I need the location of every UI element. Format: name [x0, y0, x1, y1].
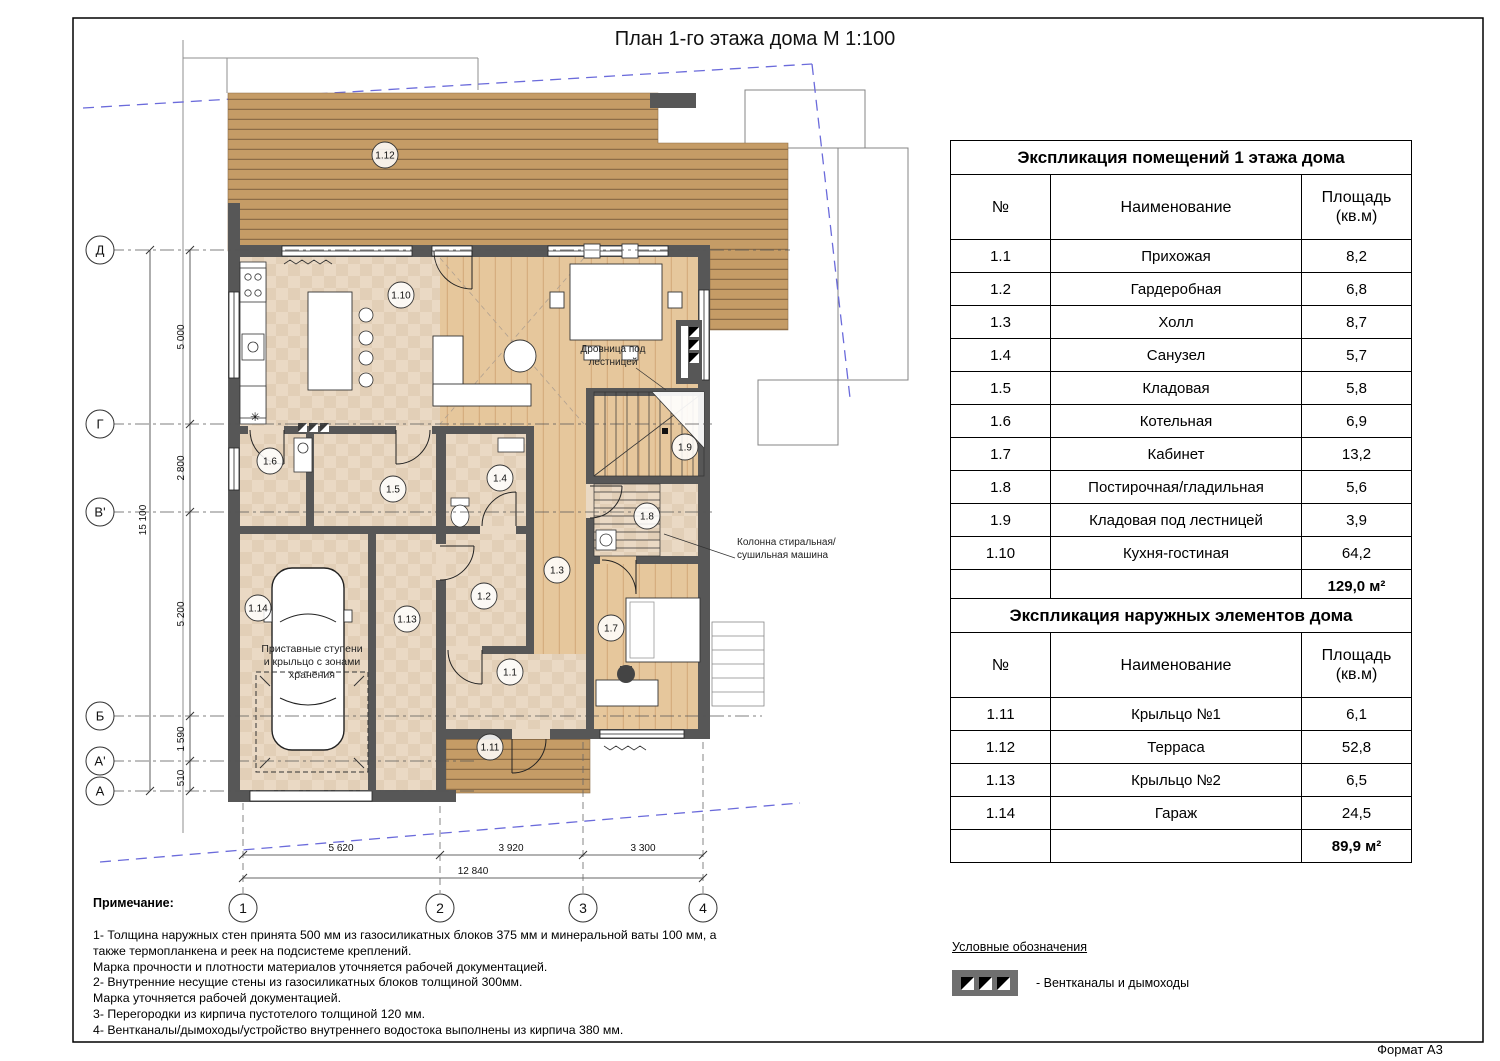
axis-label: В' — [94, 505, 105, 520]
room-marker-label: 1.3 — [550, 566, 564, 577]
room-marker-label: 1.1 — [503, 668, 517, 679]
vent-channel-legend-icon — [952, 970, 1018, 996]
room-marker-label: 1.14 — [248, 604, 268, 615]
room-marker-label: 1.6 — [263, 457, 277, 468]
table-cell: 3,9 — [1302, 504, 1412, 537]
table-cell: Терраса — [1051, 731, 1302, 764]
room-marker-label: 1.2 — [477, 592, 491, 603]
table-cell: Холл — [1051, 306, 1302, 339]
column-header: Площадь (кв.м) — [1302, 175, 1412, 240]
table-row: 1.4Санузел5,7 — [951, 339, 1412, 372]
desk — [596, 680, 658, 706]
table-cell: Кладовая — [1051, 372, 1302, 405]
exterior-spec-table: Экспликация наружных элементов дома№Наим… — [950, 598, 1412, 863]
table-cell: Прихожая — [1051, 240, 1302, 273]
annotation-text: хранения — [289, 669, 335, 681]
notes-heading: Примечание: — [93, 896, 803, 910]
table-row: 1.3Холл8,7 — [951, 306, 1412, 339]
table-cell: 5,7 — [1302, 339, 1412, 372]
note-line: 4- Вентканалы/дымоходы/устройство внутре… — [93, 1023, 803, 1039]
rooms-spec-table: Экспликация помещений 1 этажа дома№Наиме… — [950, 140, 1412, 603]
table-cell: Гараж — [1051, 797, 1302, 830]
table-row: 1.7Кабинет13,2 — [951, 438, 1412, 471]
washer-dryer — [596, 530, 616, 550]
table-cell-empty — [1051, 830, 1302, 863]
dimension-label: 5 000 — [176, 324, 187, 349]
dimension-label: 1 590 — [176, 726, 187, 751]
table-cell: 1.5 — [951, 372, 1051, 405]
table-cell: 1.4 — [951, 339, 1051, 372]
page-title: План 1-го этажа дома М 1:100 — [545, 28, 965, 51]
table-row: 1.9Кладовая под лестницей3,9 — [951, 504, 1412, 537]
table-cell: Гардеробная — [1051, 273, 1302, 306]
axis-label: А' — [94, 754, 105, 769]
table-cell: Постирочная/гладильная — [1051, 471, 1302, 504]
table-cell: 1.9 — [951, 504, 1051, 537]
table-row: 1.10Кухня-гостиная64,2 — [951, 537, 1412, 570]
legend-item-label: - Вентканалы и дымоходы — [1036, 976, 1189, 990]
column-header: № — [951, 175, 1051, 240]
garage-gate — [250, 791, 372, 801]
table-cell: 1.11 — [951, 698, 1051, 731]
column-header: Наименование — [1051, 175, 1302, 240]
legend-heading: Условные обозначения — [952, 940, 1392, 954]
table-cell: 6,8 — [1302, 273, 1412, 306]
table-title: Экспликация помещений 1 этажа дома — [951, 141, 1412, 175]
note-line: 1- Толщина наружных стен принята 500 мм … — [93, 928, 803, 944]
note-line: также термопланкена и реек на подсистеме… — [93, 944, 803, 960]
note-line: 3- Перегородки из кирпича пустотелого то… — [93, 1007, 803, 1023]
dimension-label: 12 840 — [458, 866, 489, 877]
column-header: № — [951, 633, 1051, 698]
axis-label: Д — [96, 243, 105, 258]
annotation-text: и крыльцо с зонами — [264, 656, 361, 668]
room-marker-label: 1.7 — [604, 624, 618, 635]
notes-lines: 1- Толщина наружных стен принята 500 мм … — [93, 928, 803, 1039]
dimension-label: 5 620 — [328, 843, 353, 854]
kitchen-island — [308, 292, 352, 390]
table-title: Экспликация наружных элементов дома — [951, 599, 1412, 633]
dimension-label: 15 100 — [138, 504, 149, 535]
table-cell: Крыльцо №2 — [1051, 764, 1302, 797]
annotation-text: Приставные ступени — [261, 643, 362, 655]
table-cell: 6,5 — [1302, 764, 1412, 797]
table-row: 1.8Постирочная/гладильная5,6 — [951, 471, 1412, 504]
table-row: 1.5Кладовая5,8 — [951, 372, 1412, 405]
table-cell: 1.1 — [951, 240, 1051, 273]
table-cell: 64,2 — [1302, 537, 1412, 570]
column-header: Наименование — [1051, 633, 1302, 698]
table-cell: 1.6 — [951, 405, 1051, 438]
table-cell: 8,2 — [1302, 240, 1412, 273]
coffee-table — [504, 340, 536, 372]
table-cell: 8,7 — [1302, 306, 1412, 339]
room-marker-label: 1.12 — [375, 151, 395, 162]
room-marker-label: 1.8 — [640, 512, 654, 523]
table-cell: 1.10 — [951, 537, 1051, 570]
boiler-room-fixtures — [294, 438, 312, 472]
table-cell: 5,6 — [1302, 471, 1412, 504]
table-cell: 24,5 — [1302, 797, 1412, 830]
table-total: 89,9 м² — [1302, 830, 1412, 863]
notes-block: Примечание: 1- Толщина наружных стен при… — [93, 896, 803, 1039]
table-cell: Кухня-гостиная — [1051, 537, 1302, 570]
table-cell: 1.14 — [951, 797, 1051, 830]
table-row: 1.11Крыльцо №16,1 — [951, 698, 1412, 731]
table-cell: 5,8 — [1302, 372, 1412, 405]
annotation-text: Колонна стиральная/ — [737, 537, 836, 548]
table-row: 1.14Гараж24,5 — [951, 797, 1412, 830]
table-row: 1.13Крыльцо №26,5 — [951, 764, 1412, 797]
table-cell: 52,8 — [1302, 731, 1412, 764]
table-cell: 6,9 — [1302, 405, 1412, 438]
table-cell: 1.3 — [951, 306, 1051, 339]
room-marker-label: 1.11 — [481, 743, 500, 754]
room-marker-label: 1.13 — [397, 615, 417, 626]
note-line: Марка уточняется рабочей документацией. — [93, 991, 803, 1007]
table-cell: Котельная — [1051, 405, 1302, 438]
table-cell: Санузел — [1051, 339, 1302, 372]
table-cell: Крыльцо №1 — [1051, 698, 1302, 731]
table-row: 1.2Гардеробная6,8 — [951, 273, 1412, 306]
annotation-text: лестницей — [589, 357, 638, 368]
legend-block: Условные обозначения - Вентканалы и дымо… — [952, 940, 1392, 996]
table-cell: 6,1 — [1302, 698, 1412, 731]
boiler-symbol: ✳ — [250, 410, 260, 424]
stove — [240, 268, 266, 302]
format-label: Формат А3 — [1320, 1042, 1500, 1057]
axis-label: Б — [96, 709, 105, 724]
dimension-label: 3 300 — [630, 843, 655, 854]
room-marker-label: 1.10 — [391, 291, 411, 302]
room-marker-label: 1.5 — [386, 485, 400, 496]
note-line: Марка прочности и плотности материалов у… — [93, 960, 803, 976]
annotation-text: Дровница под — [581, 344, 646, 355]
table-cell: 1.13 — [951, 764, 1051, 797]
drawing-sheet: ✳ — [0, 0, 1500, 1061]
table-cell: 1.8 — [951, 471, 1051, 504]
kitchen-counter — [240, 262, 266, 424]
annotation-text: сушильная машина — [737, 550, 828, 561]
table-cell: 1.2 — [951, 273, 1051, 306]
table-row: 1.12Терраса52,8 — [951, 731, 1412, 764]
room-marker-label: 1.4 — [493, 474, 507, 485]
table-row: 1.1Прихожая8,2 — [951, 240, 1412, 273]
table-cell: 1.7 — [951, 438, 1051, 471]
dimension-label: 5 200 — [176, 601, 187, 626]
porch-1-deck — [446, 733, 590, 793]
exterior-steps — [712, 622, 764, 706]
table-cell: Кабинет — [1051, 438, 1302, 471]
axis-label: Г — [96, 417, 103, 432]
dimension-label: 510 — [176, 769, 187, 786]
column-header: Площадь (кв.м) — [1302, 633, 1412, 698]
table-cell: 1.12 — [951, 731, 1051, 764]
table-row: 1.6Котельная6,9 — [951, 405, 1412, 438]
axis-label: А — [96, 784, 105, 799]
dimension-label: 2 800 — [176, 455, 187, 480]
dimension-label: 3 920 — [498, 843, 523, 854]
sink — [242, 334, 264, 360]
room-marker-label: 1.9 — [678, 443, 692, 454]
table-cell-empty — [951, 830, 1051, 863]
note-line: 2- Внутренние несущие стены из газосилик… — [93, 975, 803, 991]
table-cell: Кладовая под лестницей — [1051, 504, 1302, 537]
fireplace-tv-unit — [676, 320, 702, 384]
table-cell: 13,2 — [1302, 438, 1412, 471]
